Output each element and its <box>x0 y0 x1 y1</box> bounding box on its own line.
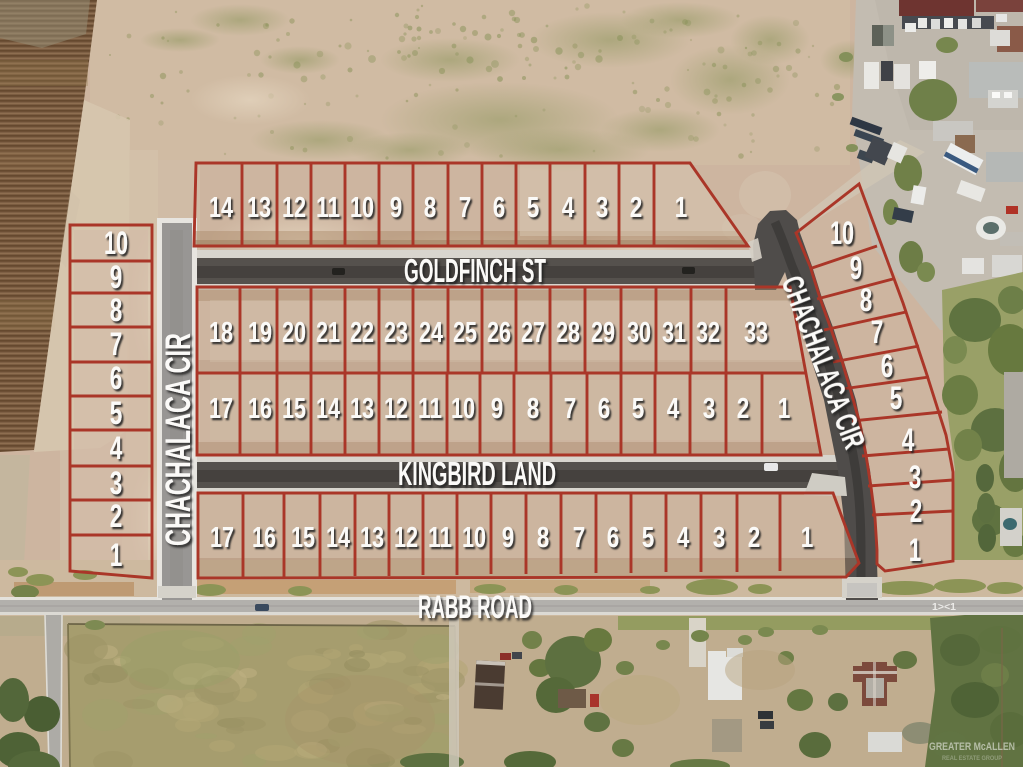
svg-text:30: 30 <box>627 317 651 349</box>
svg-text:13: 13 <box>350 393 374 425</box>
svg-text:5: 5 <box>632 393 645 425</box>
svg-text:11: 11 <box>316 192 340 224</box>
svg-text:27: 27 <box>521 317 545 349</box>
svg-text:6: 6 <box>607 522 620 554</box>
svg-text:REAL ESTATE GROUP: REAL ESTATE GROUP <box>942 755 1003 762</box>
svg-text:7: 7 <box>871 314 884 350</box>
svg-text:21: 21 <box>316 317 340 349</box>
svg-text:33: 33 <box>744 317 768 349</box>
svg-text:3: 3 <box>703 393 716 425</box>
svg-text:GREATER McALLEN: GREATER McALLEN <box>929 741 1015 753</box>
svg-text:10: 10 <box>462 522 486 554</box>
svg-text:24: 24 <box>419 317 443 349</box>
svg-text:11: 11 <box>428 522 452 554</box>
svg-text:7: 7 <box>459 192 472 224</box>
svg-text:11: 11 <box>418 393 442 425</box>
svg-text:10: 10 <box>830 215 854 251</box>
svg-text:20: 20 <box>282 317 306 349</box>
svg-text:3: 3 <box>110 465 123 501</box>
svg-text:3: 3 <box>713 522 726 554</box>
svg-text:12: 12 <box>282 192 306 224</box>
svg-text:6: 6 <box>110 360 123 396</box>
svg-text:22: 22 <box>350 317 374 349</box>
svg-text:6: 6 <box>493 192 506 224</box>
svg-text:2: 2 <box>737 393 750 425</box>
svg-text:3: 3 <box>909 459 922 495</box>
svg-text:RABB ROAD: RABB ROAD <box>418 589 532 625</box>
svg-text:CHACHALACA CIR: CHACHALACA CIR <box>159 333 198 546</box>
svg-text:5: 5 <box>527 192 540 224</box>
svg-text:10: 10 <box>350 192 374 224</box>
svg-text:9: 9 <box>390 192 403 224</box>
svg-text:12: 12 <box>394 522 418 554</box>
svg-text:1: 1 <box>110 537 123 573</box>
svg-text:4: 4 <box>667 393 680 425</box>
svg-text:14: 14 <box>209 192 233 224</box>
svg-text:2: 2 <box>748 522 761 554</box>
svg-text:19: 19 <box>248 317 272 349</box>
svg-text:KINGBIRD LAND: KINGBIRD LAND <box>398 455 556 492</box>
svg-text:1: 1 <box>778 393 791 425</box>
svg-text:8: 8 <box>110 292 123 328</box>
svg-text:29: 29 <box>591 317 615 349</box>
svg-text:23: 23 <box>384 317 408 349</box>
svg-text:3: 3 <box>596 192 609 224</box>
svg-text:1: 1 <box>675 192 688 224</box>
svg-text:9: 9 <box>502 522 515 554</box>
svg-text:26: 26 <box>487 317 511 349</box>
svg-text:7: 7 <box>564 393 577 425</box>
svg-text:4: 4 <box>562 192 575 224</box>
svg-text:10: 10 <box>104 225 128 261</box>
svg-text:10: 10 <box>451 393 475 425</box>
svg-text:8: 8 <box>860 282 873 318</box>
svg-text:6: 6 <box>598 393 611 425</box>
svg-text:16: 16 <box>252 522 276 554</box>
svg-text:8: 8 <box>424 192 437 224</box>
svg-text:2: 2 <box>110 498 123 534</box>
svg-text:1: 1 <box>801 522 814 554</box>
svg-text:17: 17 <box>210 522 234 554</box>
svg-text:9: 9 <box>110 259 123 295</box>
svg-text:13: 13 <box>247 192 271 224</box>
svg-text:12: 12 <box>384 393 408 425</box>
svg-text:8: 8 <box>527 393 540 425</box>
svg-text:6: 6 <box>881 348 894 384</box>
svg-text:9: 9 <box>491 393 504 425</box>
svg-text:14: 14 <box>316 393 340 425</box>
svg-text:14: 14 <box>326 522 350 554</box>
svg-text:8: 8 <box>537 522 550 554</box>
svg-text:2: 2 <box>910 493 923 529</box>
svg-text:1><1: 1><1 <box>932 602 956 613</box>
svg-text:31: 31 <box>662 317 686 349</box>
svg-text:7: 7 <box>110 326 123 362</box>
svg-text:32: 32 <box>696 317 720 349</box>
svg-text:5: 5 <box>642 522 655 554</box>
svg-text:16: 16 <box>248 393 272 425</box>
svg-text:9: 9 <box>850 250 863 286</box>
svg-text:17: 17 <box>209 393 233 425</box>
svg-text:7: 7 <box>573 522 586 554</box>
svg-text:25: 25 <box>453 317 477 349</box>
svg-text:4: 4 <box>677 522 690 554</box>
svg-text:15: 15 <box>282 393 306 425</box>
svg-text:4: 4 <box>902 422 915 458</box>
svg-text:28: 28 <box>556 317 580 349</box>
svg-text:1: 1 <box>909 532 922 568</box>
svg-text:2: 2 <box>630 192 643 224</box>
svg-text:5: 5 <box>890 380 903 416</box>
svg-text:18: 18 <box>209 317 233 349</box>
svg-text:GOLDFINCH ST: GOLDFINCH ST <box>404 252 546 289</box>
svg-text:4: 4 <box>110 430 123 466</box>
svg-text:5: 5 <box>110 395 123 431</box>
svg-text:15: 15 <box>291 522 315 554</box>
svg-text:13: 13 <box>360 522 384 554</box>
